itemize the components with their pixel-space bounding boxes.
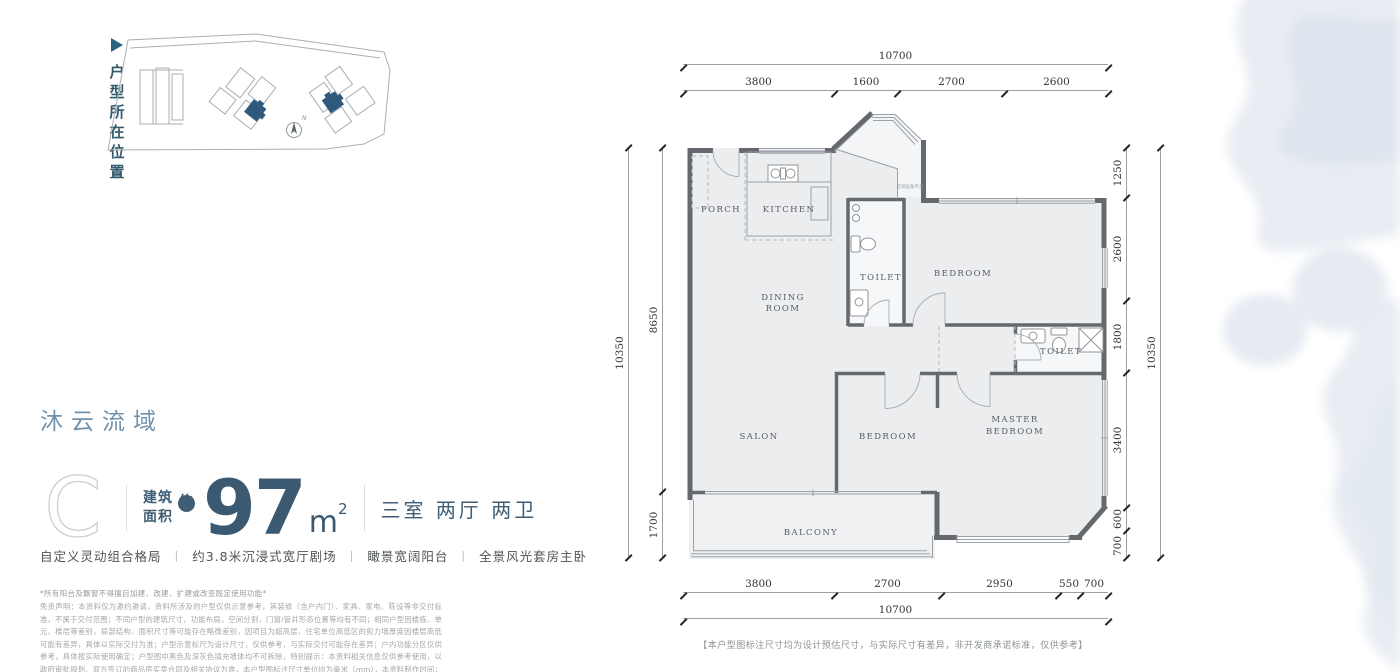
feature-separator: | — [175, 549, 180, 562]
feature-item: 约3.8米沉浸式宽厅剧场 — [192, 546, 336, 565]
approx-badge: 约 — [178, 495, 195, 512]
page: 户型所在位置 — [0, 0, 1400, 672]
area-label-line1: 建筑 — [143, 490, 173, 508]
legal-disclaimer: 免责声明：本资料仅为邀约邀请，资料所涉及的户型仅供示意参考，其装修（含户内门）、… — [40, 601, 442, 672]
area-headline: C 建筑 面积 约 97 m2 三室 两厅 两卫 — [36, 468, 537, 548]
type-letter: C — [44, 466, 101, 550]
svg-text:N: N — [302, 115, 307, 122]
room-label-master-1: MASTER — [991, 415, 1038, 425]
feature-separator: | — [350, 549, 355, 562]
dim-bottom-segments: 3800 2700 2950 550 700 — [683, 572, 1108, 598]
floor-plan-panel: 10700 3800 1600 2700 2600 10350 8650 170… — [598, 40, 1188, 665]
area-unit: m2 — [309, 500, 348, 548]
room-label-master-2: BEDROOM — [986, 427, 1044, 437]
room-label-kitchen: KITCHEN — [763, 205, 816, 215]
room-label-toilet-b: TOILET — [1040, 347, 1082, 357]
room-label-dining-2: ROOM — [766, 304, 801, 314]
dim-top-total: 10700 — [683, 44, 1108, 70]
room-label-bedroom-a: BEDROOM — [934, 269, 992, 279]
room-label-toilet-a: TOILET — [860, 273, 902, 283]
room-label-dining-1: DINING — [761, 293, 805, 303]
rooms-summary: 三室 两厅 两卫 — [381, 494, 538, 523]
feature-item: 瞰景宽阔阳台 — [367, 546, 448, 565]
divider — [364, 485, 365, 531]
dim-left: 10350 8650 1700 — [620, 148, 678, 559]
feature-item: 全景风光套房主卧 — [479, 546, 587, 565]
room-label-balcony: BALCONY — [784, 528, 838, 538]
feature-separator: | — [461, 549, 466, 562]
room-label-bedroom-b: BEDROOM — [859, 432, 917, 442]
floor-plan-drawing: PORCH KITCHEN DINING ROOM TOILET BEDROOM… — [683, 108, 1108, 560]
area-label: 建筑 面积 约 — [143, 490, 173, 527]
site-building-left — [140, 68, 183, 124]
project-title: 沐云流域 — [40, 402, 164, 436]
room-label-salon: SALON — [739, 432, 778, 442]
dim-right: 1250 2600 1800 3400 600 700 10350 — [1116, 148, 1174, 559]
ac-platform-label: 空调设备平台 — [897, 183, 924, 190]
area-label-line2: 面积 — [143, 509, 173, 527]
area-value: 97 — [203, 474, 305, 542]
dim-top-segments: 3800 1600 2700 2600 — [683, 70, 1108, 96]
compass-icon: N — [287, 115, 308, 138]
plan-note: 【本户型图标注尺寸均为设计预估尺寸，与实际尺寸有差异，非开发商承诺标准，仅供参考… — [658, 638, 1128, 651]
dim-bottom-total: 10700 — [683, 598, 1108, 624]
feature-list: 自定义灵动组合格局 | 约3.8米沉浸式宽厅剧场 | 瞰景宽阔阳台 | 全景风光… — [40, 546, 587, 565]
balcony-note: *所有阳台及飘窗不得擅自加建、改建、扩建或改变既定使用功能* — [40, 588, 440, 599]
site-plan: N — [96, 28, 418, 176]
room-label-porch: PORCH — [701, 205, 741, 215]
site-building-middle — [209, 61, 280, 133]
divider — [126, 485, 127, 531]
type-letter-glyph: C — [36, 466, 110, 550]
feature-item: 自定义灵动组合格局 — [40, 546, 162, 565]
